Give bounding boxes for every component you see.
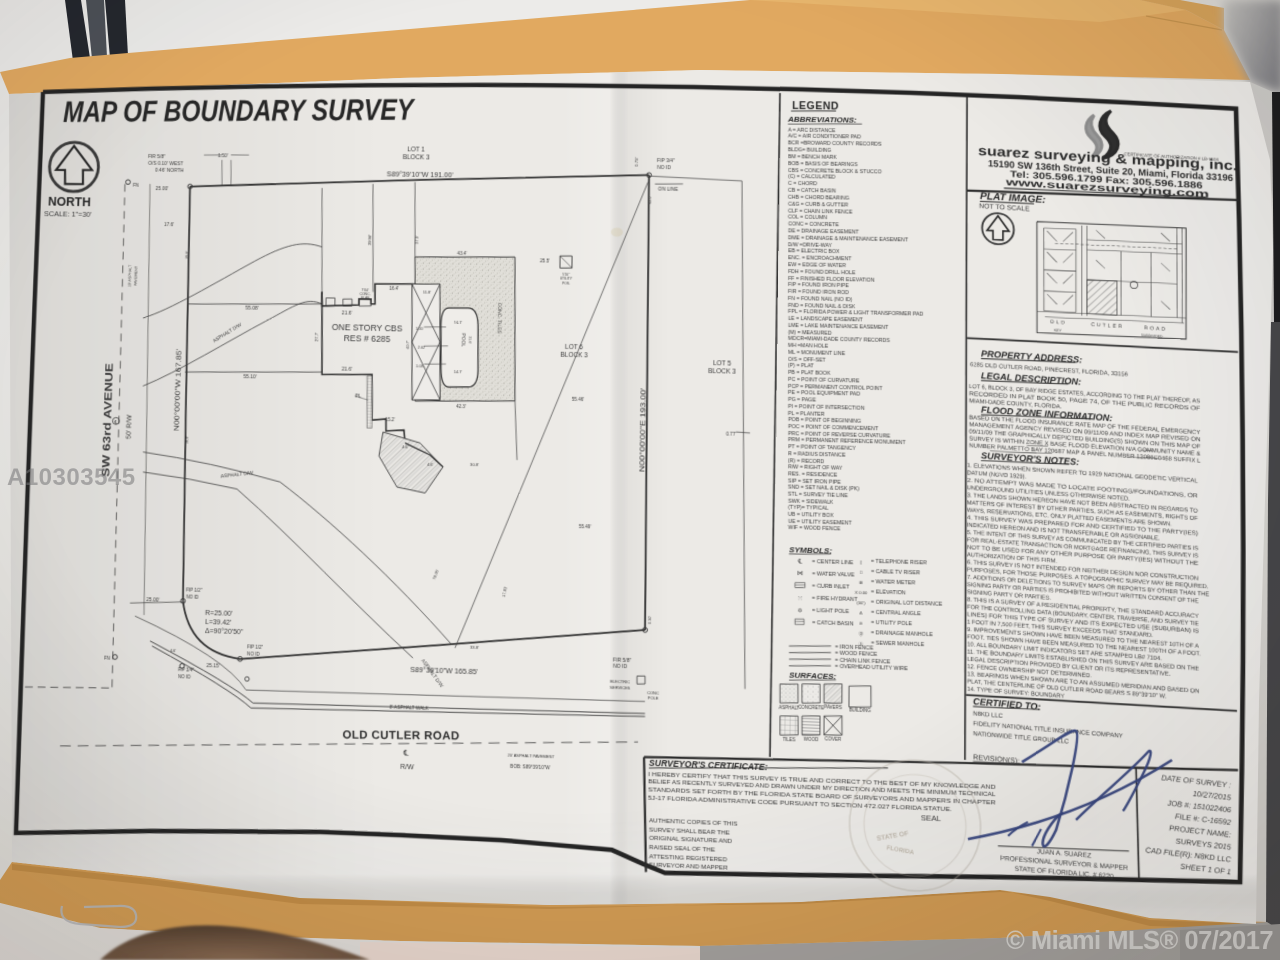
svg-text:= LIGHT POLE: = LIGHT POLE <box>812 608 850 616</box>
svg-text:15.2': 15.2' <box>385 417 395 422</box>
svg-text:OLD: OLD <box>1050 319 1067 326</box>
svg-text:(00'): (00') <box>857 599 866 605</box>
svg-text:MAP OF BOUNDARY SURVEY: MAP OF BOUNDARY SURVEY <box>63 93 416 129</box>
svg-text:⁙: ⁙ <box>797 596 802 603</box>
svg-text:PL = PLANTER: PL = PLANTER <box>788 410 825 417</box>
svg-text:= ELEVATION: = ELEVATION <box>871 589 906 596</box>
svg-text:EW = EDGE OF WATER: EW = EDGE OF WATER <box>788 262 846 269</box>
svg-text:BLOCK 3: BLOCK 3 <box>708 367 736 375</box>
svg-text:FDH = FOUND DRILL HOLE: FDH = FOUND DRILL HOLE <box>788 269 856 277</box>
svg-text:□: □ <box>860 569 863 574</box>
svg-text:NO ID: NO ID <box>178 674 191 680</box>
svg-text:EB = ELECTRIC BOX: EB = ELECTRIC BOX <box>788 248 840 255</box>
svg-text:17.6': 17.6' <box>164 222 175 228</box>
svg-text:= SEWER MANHOLE: = SEWER MANHOLE <box>871 640 925 648</box>
svg-text:FLORIDA: FLORIDA <box>886 845 914 856</box>
svg-text:ASPHALT D/W: ASPHALT D/W <box>212 322 243 345</box>
svg-text:CBS = CONCRETE BLOCK & STUCCO: CBS = CONCRETE BLOCK & STUCCO <box>788 167 882 175</box>
svg-text:ORIGINAL SIGNATURE AND: ORIGINAL SIGNATURE AND <box>649 836 732 846</box>
svg-text:▯: ▯ <box>860 559 862 564</box>
svg-text:POB = POINT OF BEGINNING: POB = POINT OF BEGINNING <box>788 417 861 425</box>
svg-text:37.6': 37.6' <box>415 235 419 244</box>
svg-text:ASPHALT D/W: ASPHALT D/W <box>220 470 254 480</box>
svg-text:= CURB INLET: = CURB INLET <box>812 583 851 591</box>
svg-text:N8KD LLC: N8KD LLC <box>973 711 1003 720</box>
svg-text:14.7': 14.7' <box>454 321 463 325</box>
svg-text:ML = MONUMENT LINE: ML = MONUMENT LINE <box>788 350 846 358</box>
svg-text:PROPERTY ADDRESS:: PROPERTY ADDRESS: <box>981 348 1082 365</box>
svg-text:CLF = CHAIN LINK FENCE: CLF = CHAIN LINK FENCE <box>788 208 853 215</box>
svg-text:42.3': 42.3' <box>456 404 466 409</box>
svg-text:0.30': 0.30' <box>648 615 652 624</box>
svg-text:PAVEMENT: PAVEMENT <box>134 265 139 286</box>
svg-text:CB = CATCH BASIN: CB = CATCH BASIN <box>788 188 837 195</box>
svg-text:SLAB: SLAB <box>361 296 371 300</box>
svg-text:NO ID: NO ID <box>657 165 672 171</box>
svg-text:20' ASPHALT PAVEMENT: 20' ASPHALT PAVEMENT <box>508 753 556 759</box>
svg-text:X 0.00: X 0.00 <box>855 589 868 595</box>
svg-text:S89°39'10"W 165.85': S89°39'10"W 165.85' <box>410 665 478 676</box>
svg-text:LOT 5: LOT 5 <box>713 360 732 368</box>
svg-text:SEAL: SEAL <box>921 813 941 822</box>
svg-text:BLDG= BUILDING: BLDG= BUILDING <box>788 147 832 154</box>
svg-text:16.4': 16.4' <box>389 286 399 291</box>
svg-text:N00°00'00"E 193.00': N00°00'00"E 193.00' <box>638 388 648 472</box>
svg-text:BM = BENCH MARK: BM = BENCH MARK <box>788 154 837 161</box>
svg-text:SURVEYOR'S CERTIFICATE:: SURVEYOR'S CERTIFICATE: <box>649 759 768 773</box>
svg-text:0.77': 0.77' <box>726 432 736 438</box>
svg-text:55.46': 55.46' <box>572 397 585 403</box>
svg-text:25.00': 25.00' <box>146 597 159 604</box>
svg-text:= WATER METER: = WATER METER <box>871 579 916 587</box>
svg-text:⊘: ⊘ <box>859 620 863 625</box>
svg-text:(R) = RECORD: (R) = RECORD <box>788 458 825 465</box>
svg-text:FIR 5/8": FIR 5/8" <box>613 657 632 664</box>
svg-text:COL = COLUMN: COL = COLUMN <box>788 215 828 222</box>
svg-text:℄: ℄ <box>797 559 802 566</box>
svg-text:36.8': 36.8' <box>185 436 189 444</box>
svg-text:O/S 0.10' WEST: O/S 0.10' WEST <box>148 161 183 168</box>
svg-text:= UTILITY POLE: = UTILITY POLE <box>871 620 913 628</box>
svg-text:Δ: Δ <box>860 610 863 615</box>
svg-text:FND = FOUND NAIL & DISK: FND = FOUND NAIL & DISK <box>788 302 856 310</box>
svg-text:SURVEYS 2015: SURVEYS 2015 <box>1176 838 1232 852</box>
svg-text:25.5': 25.5' <box>540 258 550 263</box>
svg-text:= CABLE TV RISER: = CABLE TV RISER <box>871 569 921 577</box>
svg-text:℄: ℄ <box>113 420 118 426</box>
svg-text:NORTH: NORTH <box>48 194 91 209</box>
svg-text:FIP 1/2": FIP 1/2" <box>186 587 203 593</box>
svg-text:⋈: ⋈ <box>797 571 804 578</box>
svg-text:ASPHALT: ASPHALT <box>779 704 800 710</box>
svg-text:18' ASPHALT: 18' ASPHALT <box>128 264 133 287</box>
svg-text:25.15': 25.15' <box>206 663 220 670</box>
svg-text:A = ARC DISTANCE: A = ARC DISTANCE <box>788 127 836 134</box>
svg-text:0.75': 0.75' <box>634 157 639 167</box>
svg-text:(P) = PLAT: (P) = PLAT <box>788 363 814 370</box>
svg-text:= ORIGINAL LOT DISTANCE: = ORIGINAL LOT DISTANCE <box>871 600 943 609</box>
svg-text:8' ASPHALT WALK: 8' ASPHALT WALK <box>389 705 428 712</box>
svg-text:= CENTRAL ANGLE: = CENTRAL ANGLE <box>871 610 921 618</box>
svg-text:4.6': 4.6' <box>402 445 409 449</box>
svg-text:FIP 3/4": FIP 3/4" <box>178 667 195 673</box>
svg-text:(C) = CALCULATED: (C) = CALCULATED <box>788 174 836 181</box>
svg-text:RES # 6285: RES # 6285 <box>344 332 391 343</box>
svg-text:C&G = CURB & GUTTER: C&G = CURB & GUTTER <box>788 201 849 208</box>
svg-text:FF = FINISHED FLOOR ELEVATION: FF = FINISHED FLOOR ELEVATION <box>788 275 875 283</box>
svg-text:POOL: POOL <box>460 333 467 347</box>
svg-text:SUBDIVIDED: SUBDIVIDED <box>1141 333 1163 339</box>
svg-text:PC = POINT OF CURVATURE: PC = POINT OF CURVATURE <box>788 377 860 385</box>
svg-text:ROAD: ROAD <box>1144 325 1167 333</box>
svg-text:62.0': 62.0' <box>648 196 652 204</box>
svg-text:BOB: S89°39'10"W: BOB: S89°39'10"W <box>510 764 551 771</box>
svg-text:39.98': 39.98' <box>368 234 372 245</box>
svg-text:N00°00'00"W 167.85': N00°00'00"W 167.85' <box>173 349 184 432</box>
svg-text:WOOD: WOOD <box>804 736 819 742</box>
svg-text:BCR =BROWARD COUNTY RECORDS: BCR =BROWARD COUNTY RECORDS <box>788 140 883 148</box>
svg-text:RAISED SEAL OF THE: RAISED SEAL OF THE <box>649 845 715 854</box>
svg-text:27.7': 27.7' <box>314 332 319 342</box>
svg-text:10/27/2015: 10/27/2015 <box>1193 790 1231 802</box>
svg-text:= DRAINAGE MANHOLE: = DRAINAGE MANHOLE <box>871 630 934 638</box>
svg-text:PI = POINT OF INTERSECTION: PI = POINT OF INTERSECTION <box>788 404 865 412</box>
svg-text:DATE OF SURVEY :: DATE OF SURVEY : <box>1161 775 1231 790</box>
svg-text:PL: PL <box>355 393 362 399</box>
svg-text:FIP = FOUND IRON PIPE: FIP = FOUND IRON PIPE <box>788 282 850 289</box>
svg-text:SHEET 1 OF 1: SHEET 1 OF 1 <box>1180 863 1231 877</box>
svg-text:NO ID: NO ID <box>186 594 199 600</box>
svg-text:FIR = FOUND IRON ROD: FIR = FOUND IRON ROD <box>788 289 849 297</box>
svg-text:PT = POINT OF TANGENCY: PT = POINT OF TANGENCY <box>788 444 857 452</box>
svg-text:R = RADIUS DISTANCE: R = RADIUS DISTANCE <box>788 451 846 459</box>
svg-text:1.00: 1.00 <box>416 327 423 331</box>
svg-text:R/W = RIGHT OF WAY: R/W = RIGHT OF WAY <box>788 464 843 472</box>
svg-text:AUTHENTIC COPIES OF THIS: AUTHENTIC COPIES OF THIS <box>649 818 738 828</box>
svg-text:33.8': 33.8' <box>470 645 479 651</box>
svg-text:17.93': 17.93' <box>502 586 508 598</box>
svg-text:UB = UTILITY BOX: UB = UTILITY BOX <box>788 512 834 520</box>
svg-text:R/W: R/W <box>400 763 415 771</box>
svg-text:CHB = CHORD BEARING: CHB = CHORD BEARING <box>788 194 849 201</box>
svg-text:⊠: ⊠ <box>859 579 863 584</box>
svg-text:= TELEPHONE RISER: = TELEPHONE RISER <box>871 559 927 567</box>
svg-text:C = CHORD: C = CHORD <box>788 181 817 188</box>
svg-text:FIP 3/4": FIP 3/4" <box>657 158 675 164</box>
svg-text:= CENTER LINE: = CENTER LINE <box>812 559 854 567</box>
svg-text:FIR 5/8": FIR 5/8" <box>148 154 166 160</box>
svg-text:= OVERHEAD UTILITY WIRE: = OVERHEAD UTILITY WIRE <box>835 663 909 672</box>
svg-text:21.6': 21.6' <box>342 310 353 316</box>
svg-text:LOT 6: LOT 6 <box>565 344 584 352</box>
svg-text:ON LINE: ON LINE <box>658 187 678 194</box>
svg-text:14.7': 14.7' <box>454 370 463 374</box>
svg-text:O/S = OFF-SET: O/S = OFF-SET <box>788 356 826 363</box>
svg-text:TILES: TILES <box>783 737 796 743</box>
svg-text:SERVICES: SERVICES <box>610 685 631 690</box>
svg-text:= CATCH BASIN: = CATCH BASIN <box>812 620 854 628</box>
svg-text:CONC. TILES: CONC. TILES <box>496 303 503 334</box>
svg-text:1.50': 1.50' <box>218 153 229 159</box>
svg-text:55.10': 55.10' <box>243 374 256 380</box>
svg-text:STL = SURVEY TIE LINE: STL = SURVEY TIE LINE <box>788 491 849 499</box>
svg-text:4.6': 4.6' <box>170 649 177 653</box>
svg-text:℄: ℄ <box>402 748 410 758</box>
svg-text:= WATER VALVE: = WATER VALVE <box>812 571 855 579</box>
svg-text:SCALE: 1"=30': SCALE: 1"=30' <box>44 210 92 219</box>
svg-text:✡: ✡ <box>797 607 802 615</box>
svg-text:RES. = RESIDENCE: RES. = RESIDENCE <box>788 471 838 479</box>
svg-text:FN: FN <box>104 656 110 661</box>
svg-text:PB = PLAT BOOK: PB = PLAT BOOK <box>788 370 831 377</box>
svg-text:PG = PAGE: PG = PAGE <box>788 397 817 404</box>
svg-text:25.00': 25.00' <box>155 186 168 192</box>
svg-text:55.08': 55.08' <box>245 306 258 312</box>
svg-text:STATE OF: STATE OF <box>876 830 909 843</box>
svg-text:S89°39'10"W 191.00': S89°39'10"W 191.00' <box>387 170 454 179</box>
svg-text:43.4': 43.4' <box>457 251 467 256</box>
svg-text:PAVERS: PAVERS <box>824 704 842 710</box>
svg-text:WIF = WOOD FENCE: WIF = WOOD FENCE <box>788 525 841 533</box>
svg-text:L=39.42': L=39.42' <box>205 619 232 627</box>
svg-text:LE = LANDSCAPE EASEMENT: LE = LANDSCAPE EASEMENT <box>788 316 863 324</box>
svg-text:PE = POOL EQUIPMENT PAD: PE = POOL EQUIPMENT PAD <box>788 390 861 398</box>
svg-text:COVER: COVER <box>825 736 841 742</box>
svg-text:FN = FOUND NAIL (NO ID): FN = FOUND NAIL (NO ID) <box>788 296 853 304</box>
svg-text:26.6': 26.6' <box>185 251 189 259</box>
svg-text:NO ID: NO ID <box>247 651 260 657</box>
svg-text:1.03: 1.03 <box>416 364 423 368</box>
svg-text:40.7': 40.7' <box>406 340 410 349</box>
svg-text:30.8': 30.8' <box>470 462 479 467</box>
svg-text:50' R/W: 50' R/W <box>126 414 134 439</box>
svg-text:Δ=90°20'50": Δ=90°20'50" <box>205 627 244 637</box>
svg-text:0.46' NORTH: 0.46' NORTH <box>155 168 184 175</box>
svg-text:POS.: POS. <box>562 281 570 285</box>
svg-text:UE = UTILITY EASEMENT: UE = UTILITY EASEMENT <box>788 518 852 526</box>
svg-text:2.02: 2.02 <box>418 346 425 350</box>
svg-text:A/C = AIR CONDITIONER PAD: A/C = AIR CONDITIONER PAD <box>788 134 861 141</box>
svg-text:31.6': 31.6' <box>468 336 472 344</box>
svg-text:NO ID: NO ID <box>613 664 628 671</box>
svg-text:Ⓓ: Ⓓ <box>859 629 863 636</box>
svg-text:SND = SET NAIL & DISK (PK): SND = SET NAIL & DISK (PK) <box>788 484 860 492</box>
svg-text:ABBREVIATIONS:: ABBREVIATIONS: <box>787 115 857 125</box>
svg-text:D/W =DRIVE-WAY: D/W =DRIVE-WAY <box>788 242 833 249</box>
svg-text:ENC. = ENCROACHMENT: ENC. = ENCROACHMENT <box>788 255 851 262</box>
svg-text:(TYP)= TYPICAL: (TYP)= TYPICAL <box>788 505 829 512</box>
svg-text:LOT 1: LOT 1 <box>407 146 425 153</box>
svg-text:11.8': 11.8' <box>423 291 431 295</box>
svg-text:4.6': 4.6' <box>427 463 434 467</box>
svg-text:R=25.00': R=25.00' <box>205 610 233 618</box>
svg-text:CONC = CONCRETE: CONC = CONCRETE <box>788 221 840 228</box>
svg-text:SIP = SET IRON PIPE: SIP = SET IRON PIPE <box>788 478 842 486</box>
svg-text:SURVEY SHALL BEAR THE: SURVEY SHALL BEAR THE <box>649 827 730 837</box>
svg-text:KEY: KEY <box>1054 328 1062 333</box>
svg-text:CUTLER: CUTLER <box>1091 322 1124 331</box>
svg-text:(M) = MEASURED: (M) = MEASURED <box>788 329 832 336</box>
svg-text:BUILDING: BUILDING <box>849 707 871 713</box>
svg-text:POLE: POLE <box>648 696 659 701</box>
svg-text:FIP 1/2": FIP 1/2" <box>247 644 264 650</box>
svg-text:SWK = SIDEWALK: SWK = SIDEWALK <box>788 498 834 506</box>
svg-text:FN: FN <box>133 183 139 188</box>
svg-text:BOB = BASIS OF BEARINGS: BOB = BASIS OF BEARINGS <box>788 161 858 168</box>
svg-text:FILE #: C-16592: FILE #: C-16592 <box>1175 813 1231 827</box>
svg-text:CONC: CONC <box>647 691 659 696</box>
svg-text:ELECTRIC: ELECTRIC <box>610 679 630 684</box>
svg-text:BLOCK 3: BLOCK 3 <box>560 352 588 360</box>
svg-text:55.49': 55.49' <box>579 524 592 530</box>
svg-text:BLOCK 3: BLOCK 3 <box>403 154 431 162</box>
svg-text:LME = LAKE MAINTENANCE EASEMEN: LME = LAKE MAINTENANCE EASEMENT <box>788 323 889 331</box>
svg-text:78.05': 78.05' <box>432 569 440 581</box>
svg-text:DE = DRAINAGE EASEMENT: DE = DRAINAGE EASEMENT <box>788 228 859 236</box>
svg-text:CONCRETE: CONCRETE <box>798 704 824 710</box>
svg-text:MH =MAN HOLE: MH =MAN HOLE <box>788 343 829 350</box>
svg-text:21.6': 21.6' <box>342 367 353 373</box>
svg-text:OLD CUTLER ROAD: OLD CUTLER ROAD <box>343 729 460 743</box>
svg-text:= FIRE HYDRANT: = FIRE HYDRANT <box>812 596 859 604</box>
